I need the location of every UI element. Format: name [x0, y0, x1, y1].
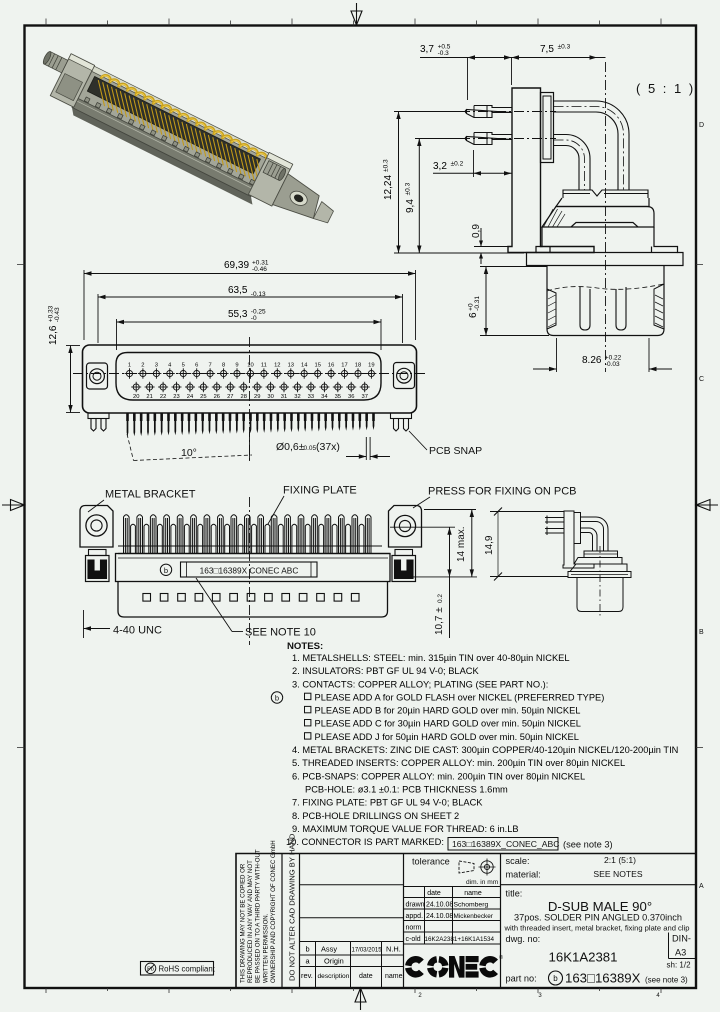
svg-text:2. INSULATORS: PBT GF UL 94 V-: 2. INSULATORS: PBT GF UL 94 V-0; BLACK: [292, 666, 479, 676]
svg-text:5: 5: [182, 363, 185, 369]
svg-text:4-40 UNC: 4-40 UNC: [113, 625, 162, 637]
svg-text:sh: 1/2: sh: 1/2: [667, 961, 692, 970]
svg-text:Origin: Origin: [324, 957, 344, 966]
svg-text:name: name: [464, 890, 482, 897]
svg-text:±0.3: ±0.3: [405, 182, 412, 195]
svg-text:163□16389X_CONEC_ABC: 163□16389X_CONEC_ABC: [452, 839, 559, 849]
svg-text:Mickenbecker: Mickenbecker: [454, 913, 494, 920]
svg-text:3,7: 3,7: [420, 44, 434, 55]
svg-text:11: 11: [261, 363, 267, 369]
svg-text:16K2A2381+16K1A1534: 16K2A2381+16K1A1534: [425, 936, 495, 943]
svg-text:2:1 (5:1): 2:1 (5:1): [604, 855, 636, 865]
svg-text:0.05: 0.05: [304, 445, 317, 452]
svg-text:30: 30: [267, 394, 273, 400]
svg-text:6: 6: [195, 363, 198, 369]
svg-text:163□16389X CONEC ABC: 163□16389X CONEC ABC: [200, 566, 299, 576]
svg-text:Ø0,6±: Ø0,6±: [276, 441, 305, 453]
svg-text:16K1A2381: 16K1A2381: [549, 950, 618, 965]
svg-text:32: 32: [294, 394, 300, 400]
svg-text:16: 16: [328, 363, 334, 369]
svg-text:part no:: part no:: [506, 974, 537, 984]
svg-text:description: description: [318, 973, 350, 980]
svg-text:±0.2: ±0.2: [451, 161, 464, 168]
svg-text:name: name: [385, 973, 403, 980]
svg-text:8.26: 8.26: [582, 355, 602, 366]
svg-text:6: 6: [468, 312, 479, 318]
svg-text:date: date: [359, 973, 373, 980]
svg-text:PLEASE ADD C for 30µin HARD GO: PLEASE ADD C for 30µin HARD GOLD over mi…: [315, 719, 581, 729]
svg-text:13: 13: [288, 363, 294, 369]
svg-text:title:: title:: [506, 889, 523, 899]
svg-text:0,9: 0,9: [471, 224, 482, 238]
svg-text:69,39: 69,39: [224, 260, 249, 271]
svg-text:21: 21: [146, 394, 152, 400]
svg-text:dwg. no:: dwg. no:: [506, 934, 541, 944]
svg-text:2: 2: [141, 363, 144, 369]
svg-text:DO NOT ALTER CAD DRAWING BY HA: DO NOT ALTER CAD DRAWING BY HAND: [288, 833, 297, 981]
svg-text:®: ®: [499, 954, 503, 961]
svg-text:c-old: c-old: [406, 936, 421, 943]
svg-text:-0.31: -0.31: [474, 296, 481, 311]
svg-text:3,2: 3,2: [433, 161, 447, 172]
svg-text:dim. in mm: dim. in mm: [466, 879, 499, 886]
svg-text:PCB-HOLE: ø3.1 ±0.1: PCB THICK: PCB-HOLE: ø3.1 ±0.1: PCB THICKNESS 1.6mm: [305, 785, 508, 795]
svg-text:3. CONTACTS: COPPER ALLOY; PLA: 3. CONTACTS: COPPER ALLOY; PLATING (SEE …: [292, 679, 548, 689]
svg-text:9: 9: [235, 363, 238, 369]
svg-text:0.2: 0.2: [437, 594, 444, 603]
svg-text:PLEASE ADD J for 50µin HARD GO: PLEASE ADD J for 50µin HARD GOLD over mi…: [315, 732, 579, 742]
svg-text:12,24: 12,24: [383, 175, 394, 200]
svg-text:20: 20: [133, 394, 139, 400]
svg-text:9. MAXIMUM TORQUE VALUE FOR TH: 9. MAXIMUM TORQUE VALUE FOR THREAD: 6 in…: [292, 824, 519, 834]
svg-text:8. PCB-HOLE DRILLINGS ON SHEET: 8. PCB-HOLE DRILLINGS ON SHEET 2: [292, 811, 459, 821]
svg-text:b: b: [305, 945, 309, 954]
svg-text:37pos. SOLDER PIN ANGLED 0.: 37pos. SOLDER PIN ANGLED 0.370inch: [514, 913, 682, 923]
svg-text:(see note 3): (see note 3): [563, 840, 613, 850]
svg-text:-0.43: -0.43: [54, 307, 61, 322]
svg-text:appd.: appd.: [406, 913, 424, 920]
svg-text:METAL BRACKET: METAL BRACKET: [105, 489, 196, 501]
svg-text:1. METALSHELLS: STEEL: min. 31: 1. METALSHELLS: STEEL: min. 315µin TIN o…: [292, 653, 570, 663]
svg-text:D: D: [699, 122, 704, 129]
svg-text:DIN-: DIN-: [672, 934, 691, 944]
svg-text:BE PASSED ON TO A THIRD PARTY: BE PASSED ON TO A THIRD PARTY WITH-OUT: [255, 849, 262, 983]
svg-text:A: A: [699, 883, 704, 890]
svg-text:norm: norm: [406, 925, 422, 932]
svg-text:PLEASE ADD B for 20µin HARD GO: PLEASE ADD B for 20µin HARD GOLD over mi…: [315, 706, 581, 716]
svg-text:3: 3: [155, 363, 158, 369]
svg-text:B: B: [699, 629, 704, 636]
svg-text:rev.: rev.: [301, 971, 313, 980]
svg-text:8: 8: [222, 363, 225, 369]
svg-text:7: 7: [208, 363, 211, 369]
svg-text:SEE NOTES: SEE NOTES: [593, 869, 642, 879]
svg-text:(see note 3): (see note 3): [645, 976, 688, 985]
svg-text:THIS DRAWING MAY NOT BE COPIED: THIS DRAWING MAY NOT BE COPIED OR: [240, 863, 247, 983]
svg-text:material:: material:: [506, 870, 541, 880]
svg-text:55,3: 55,3: [228, 309, 248, 320]
svg-text:drawn: drawn: [406, 902, 425, 909]
svg-text:SEE NOTE 10: SEE NOTE 10: [245, 627, 316, 639]
svg-text:10. CONNECTOR IS PART MARKED:: 10. CONNECTOR IS PART MARKED:: [286, 837, 444, 847]
svg-text:35: 35: [335, 394, 341, 400]
svg-text:with threaded insert, metal br: with threaded insert, metal bracket, fix…: [504, 924, 690, 933]
svg-text:9,4: 9,4: [405, 199, 416, 213]
svg-text:12: 12: [274, 363, 280, 369]
svg-text:14: 14: [301, 363, 308, 369]
svg-text:10: 10: [247, 363, 253, 369]
svg-text:163□16389X: 163□16389X: [565, 971, 641, 986]
svg-text:C: C: [699, 376, 704, 383]
svg-text:28: 28: [240, 394, 246, 400]
svg-text:63,5: 63,5: [228, 285, 248, 296]
svg-text:17/03/2015: 17/03/2015: [352, 948, 383, 954]
svg-text:19: 19: [368, 363, 374, 369]
svg-text:b: b: [553, 974, 558, 983]
svg-text:17: 17: [341, 363, 347, 369]
svg-text:25: 25: [200, 394, 206, 400]
svg-text:PRESS FOR FIXING ON PCB: PRESS FOR FIXING ON PCB: [428, 486, 577, 498]
svg-text:24.10.08: 24.10.08: [426, 902, 453, 909]
svg-text:PCB SNAP: PCB SNAP: [429, 445, 482, 457]
svg-text:b: b: [275, 694, 279, 703]
svg-text:18: 18: [355, 363, 361, 369]
svg-text:RoHS compliant: RoHS compliant: [159, 965, 216, 974]
svg-text:±0.3: ±0.3: [383, 159, 390, 172]
svg-text:WRITTEN PERMISSION.: WRITTEN PERMISSION.: [262, 913, 269, 983]
svg-text:26: 26: [214, 394, 220, 400]
svg-text:NOTES:: NOTES:: [287, 641, 323, 652]
svg-text:22: 22: [160, 394, 166, 400]
svg-text:Assy: Assy: [321, 945, 337, 954]
svg-text:33: 33: [308, 394, 314, 400]
svg-text:REPRODUCED IN ANY WAY AND MAY: REPRODUCED IN ANY WAY AND MAY NOT: [247, 860, 254, 983]
svg-text:36: 36: [348, 394, 354, 400]
svg-text:4. METAL BRACKETS: ZINC DIE CA: 4. METAL BRACKETS: ZINC DIE CAST: 300µin…: [292, 745, 678, 755]
svg-text:14 max.: 14 max.: [456, 526, 467, 562]
svg-text:7. FIXING PLATE: PBT GF UL 94: 7. FIXING PLATE: PBT GF UL 94 V-0; BLACK: [292, 798, 483, 808]
svg-text:( 5 : 1 ): ( 5 : 1 ): [636, 81, 695, 96]
svg-text:Pb: Pb: [147, 967, 154, 973]
svg-text:34: 34: [321, 394, 328, 400]
svg-text:24: 24: [187, 394, 194, 400]
svg-text:±0.3: ±0.3: [558, 44, 571, 51]
svg-text:(37x): (37x): [316, 441, 340, 453]
svg-text:14,9: 14,9: [484, 535, 495, 555]
svg-text:b: b: [164, 566, 168, 575]
svg-text:OWNERSHIP AND COPYRIGHT OF CON: OWNERSHIP AND COPYRIGHT OF CONEC GmbH: [270, 840, 277, 983]
svg-text:27: 27: [227, 394, 233, 400]
svg-text:tolerance: tolerance: [412, 857, 450, 867]
svg-text:24.10.08: 24.10.08: [426, 913, 453, 920]
svg-text:12,6: 12,6: [48, 325, 59, 345]
svg-text:PLEASE ADD A for GOLD FLASH ov: PLEASE ADD A for GOLD FLASH over NICKEL …: [315, 692, 605, 702]
svg-text:scale:: scale:: [506, 856, 530, 866]
svg-text:23: 23: [173, 394, 179, 400]
svg-text:31: 31: [281, 394, 287, 400]
svg-text:6. PCB-SNAPS: COPPER ALLOY: mi: 6. PCB-SNAPS: COPPER ALLOY: min. 200µin …: [292, 771, 585, 781]
svg-text:10°: 10°: [181, 447, 197, 459]
svg-text:15: 15: [314, 363, 320, 369]
svg-text:7,5: 7,5: [540, 44, 554, 55]
svg-text:date: date: [427, 890, 441, 897]
svg-text:37: 37: [361, 394, 367, 400]
svg-text:5. THREADED INSERTS: COPPER AL: 5. THREADED INSERTS: COPPER ALLOY: min. …: [292, 758, 625, 768]
svg-text:A3: A3: [675, 948, 686, 958]
svg-text:-0.03: -0.03: [605, 361, 620, 368]
svg-text:10,7 ±: 10,7 ±: [434, 607, 445, 635]
svg-text:1: 1: [128, 363, 131, 369]
svg-text:-0.46: -0.46: [252, 266, 267, 273]
svg-text:-0.3: -0.3: [438, 50, 450, 57]
svg-text:-0: -0: [251, 315, 257, 322]
svg-text:29: 29: [254, 394, 260, 400]
svg-text:Schomberg: Schomberg: [454, 902, 489, 909]
svg-text:FIXING PLATE: FIXING PLATE: [283, 485, 357, 497]
svg-text:N.H.: N.H.: [386, 945, 401, 954]
